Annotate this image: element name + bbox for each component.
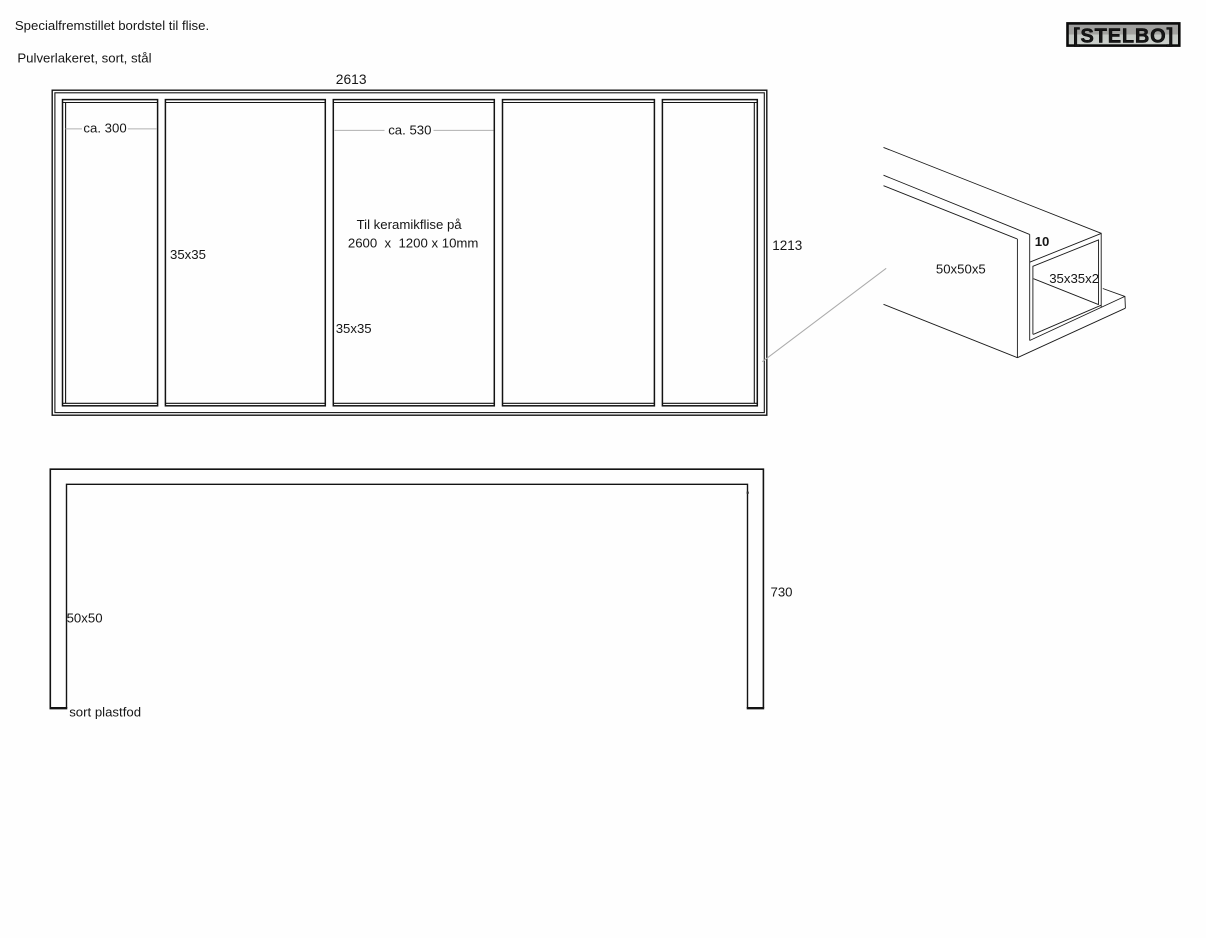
svg-text:ca. 300: ca. 300 [83, 121, 126, 136]
svg-text:Til keramikflise på: Til keramikflise på [357, 217, 463, 232]
svg-text:35x35x2: 35x35x2 [1049, 271, 1099, 286]
svg-text:Specialfremstillet bordstel ti: Specialfremstillet bordstel til flise. [15, 18, 209, 33]
svg-text:sort plastfod: sort plastfod [69, 705, 141, 720]
svg-text:50x50: 50x50 [67, 611, 103, 626]
svg-text:35x35: 35x35 [170, 247, 206, 262]
svg-text:35x35: 35x35 [336, 321, 372, 336]
svg-text:730: 730 [771, 584, 793, 599]
svg-text:50x50x5: 50x50x5 [936, 262, 986, 277]
svg-text:ca. 530: ca. 530 [388, 123, 431, 138]
svg-text:2600 x 1200 x 10mm: 2600 x 1200 x 10mm [348, 235, 478, 250]
svg-text:2613: 2613 [336, 72, 367, 87]
svg-text:[STELBO]: [STELBO] [1073, 25, 1174, 47]
svg-text:1213: 1213 [772, 238, 802, 253]
svg-text:10: 10 [1035, 234, 1050, 249]
svg-text:Pulverlakeret, sort, stål: Pulverlakeret, sort, stål [17, 51, 151, 66]
